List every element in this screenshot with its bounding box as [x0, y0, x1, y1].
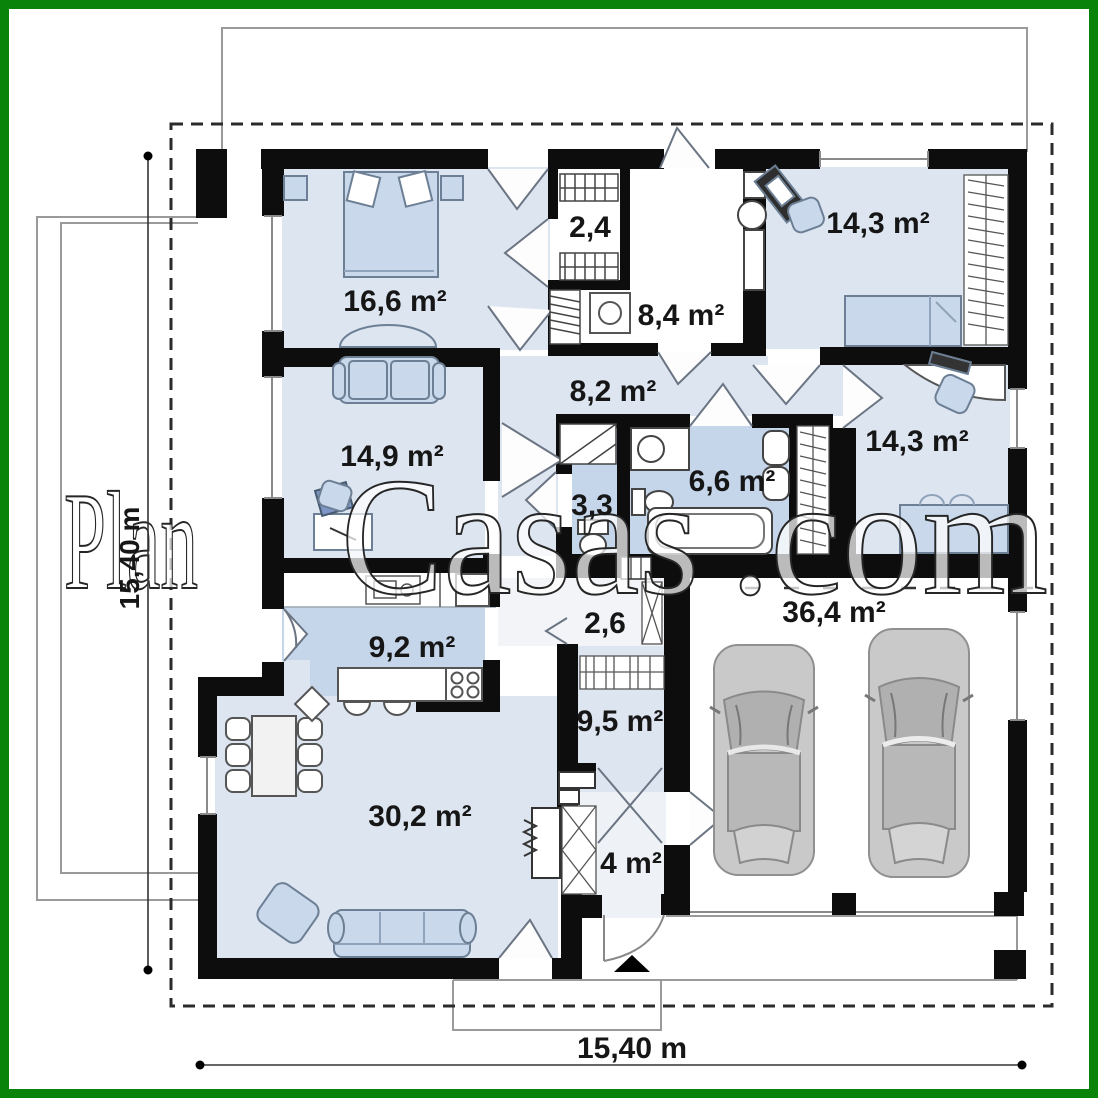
- svg-text:9,2 m²: 9,2 m²: [369, 631, 456, 664]
- svg-text:14,3 m²: 14,3 m²: [826, 207, 929, 240]
- svg-text:8,4 m²: 8,4 m²: [638, 299, 725, 332]
- svg-text:9,5 m²: 9,5 m²: [577, 705, 664, 738]
- svg-text:2,6: 2,6: [584, 607, 626, 640]
- svg-text:15,40 m: 15,40 m: [114, 507, 145, 610]
- svg-text:30,2 m²: 30,2 m²: [368, 800, 471, 833]
- svg-text:16,6 m²: 16,6 m²: [343, 285, 446, 318]
- svg-text:14,3 m²: 14,3 m²: [865, 425, 968, 458]
- svg-text:.com: .com: [730, 444, 1048, 630]
- svg-text:36,4 m²: 36,4 m²: [782, 596, 885, 629]
- svg-text:4 m²: 4 m²: [600, 847, 662, 880]
- svg-text:14,9 m²: 14,9 m²: [340, 440, 443, 473]
- svg-text:6,6 m²: 6,6 m²: [689, 465, 776, 498]
- svg-text:2,4: 2,4: [569, 211, 611, 244]
- svg-text:8,2 m²: 8,2 m²: [570, 375, 657, 408]
- svg-text:3,3: 3,3: [571, 489, 613, 522]
- svg-text:15,40 m: 15,40 m: [577, 1032, 687, 1065]
